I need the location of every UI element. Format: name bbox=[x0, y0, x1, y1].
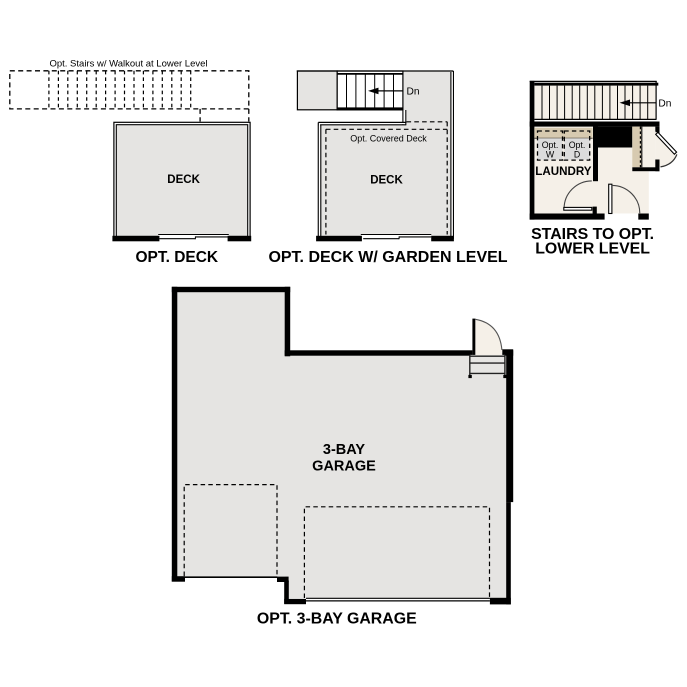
svg-text:Dn: Dn bbox=[658, 99, 671, 110]
svg-text:OPT. DECK: OPT. DECK bbox=[135, 249, 218, 266]
svg-text:GARAGE: GARAGE bbox=[312, 458, 376, 474]
svg-text:D: D bbox=[574, 149, 580, 159]
svg-text:Dn: Dn bbox=[407, 87, 420, 98]
svg-text:DECK: DECK bbox=[167, 174, 200, 186]
svg-text:LAUNDRY: LAUNDRY bbox=[535, 165, 592, 178]
svg-text:3-BAY: 3-BAY bbox=[323, 442, 366, 458]
svg-text:DECK: DECK bbox=[370, 175, 403, 187]
svg-text:Opt. Stairs w/ Walkout at Lowe: Opt. Stairs w/ Walkout at Lower Level bbox=[49, 59, 207, 70]
svg-text:OPT. 3-BAY GARAGE: OPT. 3-BAY GARAGE bbox=[257, 611, 417, 628]
svg-text:LOWER LEVEL: LOWER LEVEL bbox=[535, 240, 650, 257]
svg-text:W: W bbox=[546, 149, 555, 159]
svg-text:OPT. DECK W/ GARDEN LEVEL: OPT. DECK W/ GARDEN LEVEL bbox=[268, 249, 507, 266]
svg-text:Opt. Covered Deck: Opt. Covered Deck bbox=[350, 133, 427, 143]
